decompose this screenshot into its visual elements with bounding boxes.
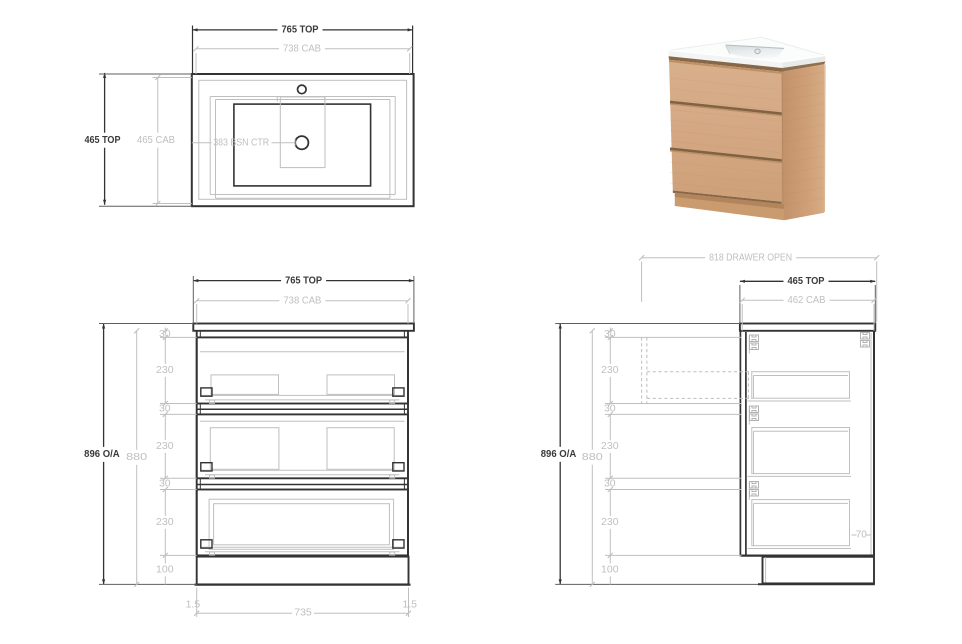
svg-text:738 CAB: 738 CAB [283,294,321,306]
svg-text:465 CAB: 465 CAB [137,134,175,146]
svg-text:230: 230 [601,440,619,452]
svg-text:230: 230 [156,364,174,376]
svg-text:230: 230 [601,364,619,376]
svg-text:70: 70 [856,530,868,541]
svg-text:1.5: 1.5 [402,599,417,611]
svg-text:230: 230 [156,440,174,452]
svg-text:465 TOP: 465 TOP [788,275,825,287]
svg-text:896 O/A: 896 O/A [84,448,120,460]
svg-text:383 BSN CTR: 383 BSN CTR [213,136,269,148]
svg-text:880: 880 [582,451,603,463]
svg-text:230: 230 [601,516,619,528]
svg-text:230: 230 [156,516,174,528]
svg-text:738 CAB: 738 CAB [283,43,321,55]
svg-text:735: 735 [294,607,312,619]
svg-text:765 TOP: 765 TOP [285,274,322,286]
svg-text:765 TOP: 765 TOP [282,24,319,36]
svg-text:818 DRAWER OPEN: 818 DRAWER OPEN [709,251,792,263]
svg-text:465 TOP: 465 TOP [85,134,121,146]
svg-text:880: 880 [126,451,147,463]
svg-text:896 O/A: 896 O/A [541,448,577,460]
svg-text:462 CAB: 462 CAB [788,294,826,306]
svg-text:1.5: 1.5 [186,599,201,611]
svg-text:100: 100 [156,564,174,576]
svg-text:100: 100 [601,564,619,576]
